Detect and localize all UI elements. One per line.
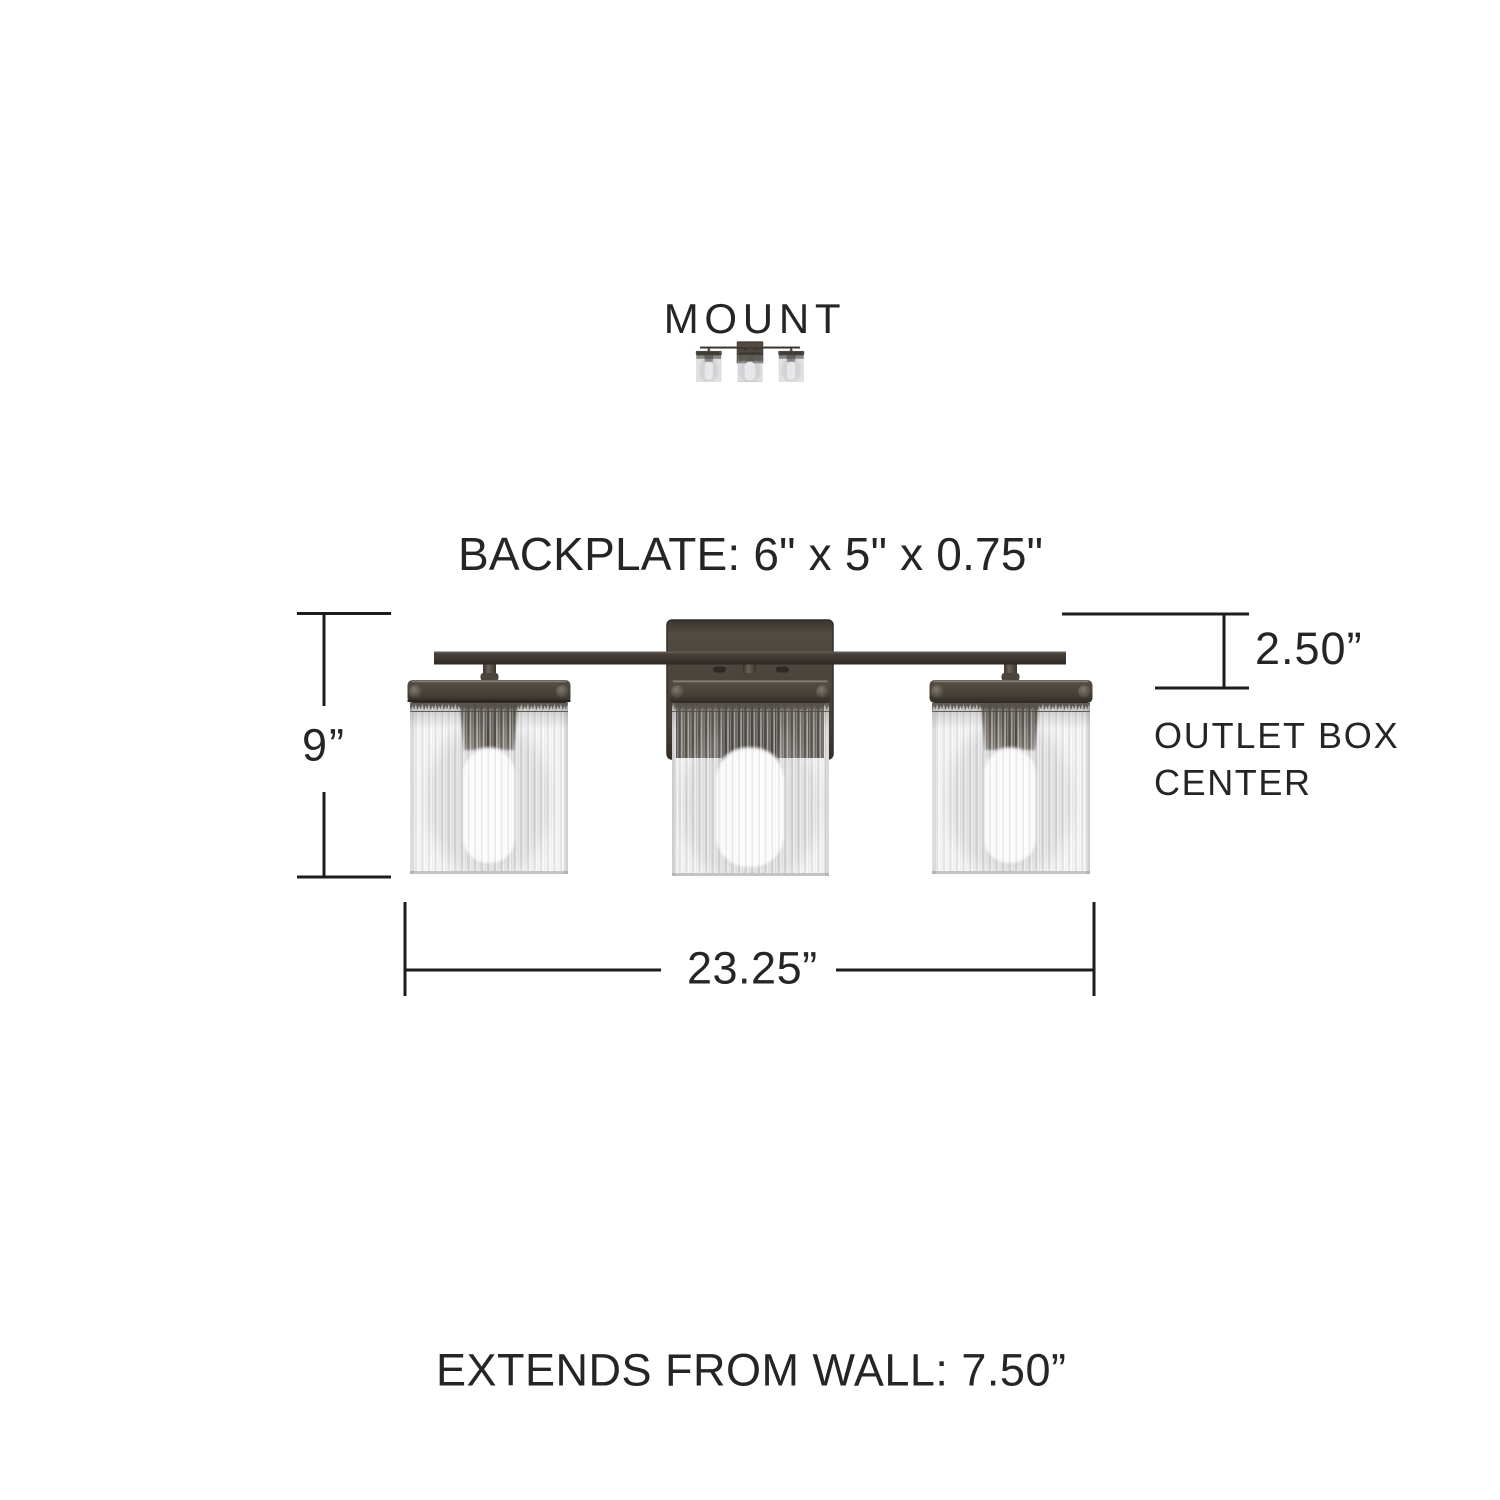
svg-text:MOUNT: MOUNT bbox=[664, 295, 846, 342]
svg-text:OUTLET BOX: OUTLET BOX bbox=[1154, 715, 1399, 756]
svg-text:EXTENDS FROM WALL: 7.50”: EXTENDS FROM WALL: 7.50” bbox=[436, 1345, 1066, 1396]
svg-text:9”: 9” bbox=[302, 720, 346, 771]
svg-text:23.25”: 23.25” bbox=[687, 943, 818, 994]
svg-text:CENTER: CENTER bbox=[1154, 762, 1312, 803]
svg-text:BACKPLATE: 6" x 5" x 0.75": BACKPLATE: 6" x 5" x 0.75" bbox=[458, 528, 1043, 580]
svg-text:2.50”: 2.50” bbox=[1255, 623, 1363, 674]
